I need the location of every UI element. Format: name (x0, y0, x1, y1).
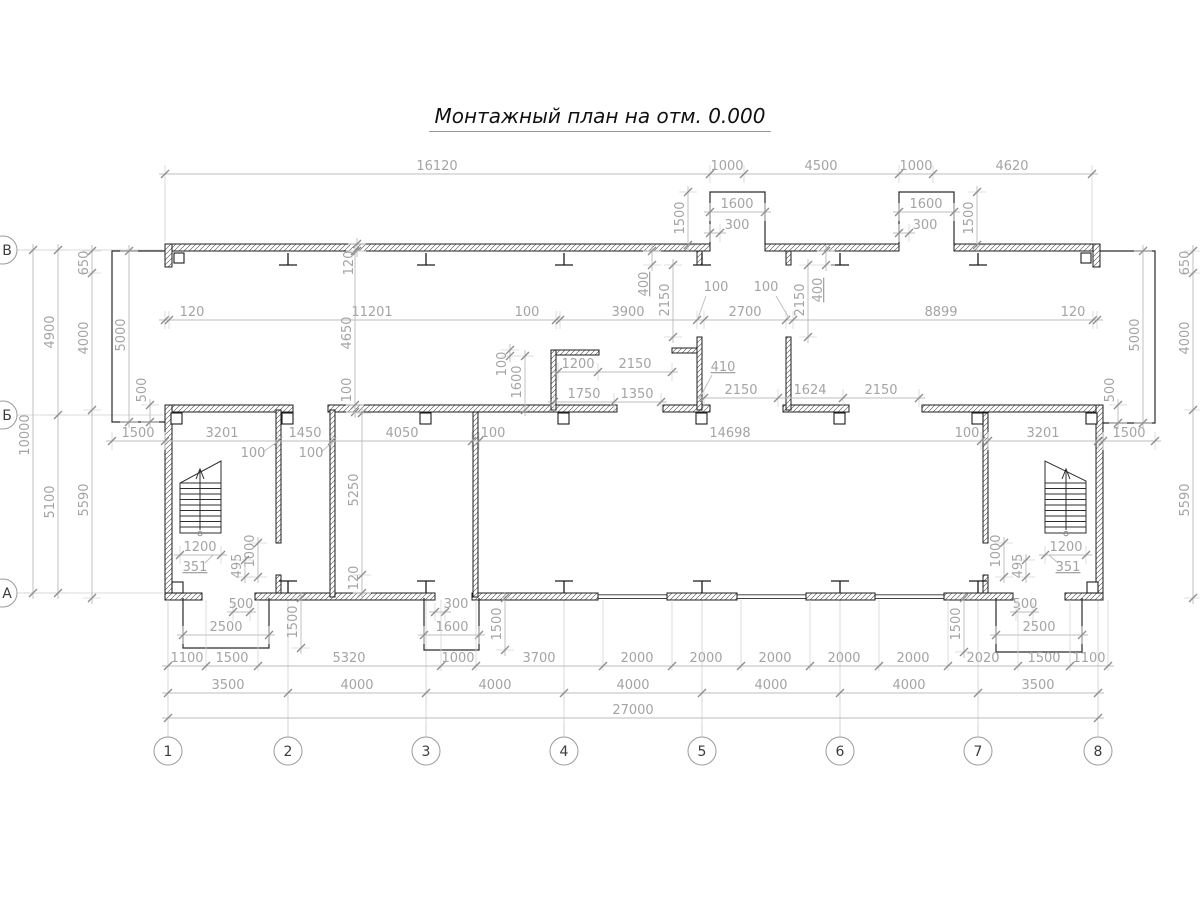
dimension: 5000 (1128, 245, 1152, 429)
dim-label: 4000 (340, 678, 373, 693)
dim-label: 1750 (567, 387, 600, 402)
stair-left (180, 461, 221, 536)
dimension: 65040005590 (77, 245, 101, 604)
dimension: 500 (1010, 597, 1039, 621)
dim-label: 500 (229, 597, 254, 612)
axis-bubble-label: 2 (284, 744, 293, 760)
dimension: 300 (429, 597, 468, 621)
dim-label: 4000 (616, 678, 649, 693)
dim-label: 100 (955, 426, 980, 441)
axis-bubble-label: А (2, 586, 12, 602)
dimension: 500 (1103, 378, 1127, 429)
dim-label: 1600 (435, 620, 468, 635)
dim-label: 1000 (989, 534, 1004, 567)
dimension: 161201000450010004620 (159, 159, 1098, 183)
dim-label: 5000 (114, 318, 129, 351)
dim-label: 120 (180, 305, 205, 320)
dim-label: 5320 (332, 651, 365, 666)
axis-bubble-label: В (2, 243, 12, 259)
dim-label: 1500 (1027, 651, 1060, 666)
leader-label: 410 (711, 360, 736, 375)
leader-note: 351 (1049, 555, 1080, 575)
dim-label: 1000 (710, 159, 743, 174)
dim-label: 2150 (618, 357, 651, 372)
axis-bubble-label: 4 (560, 744, 569, 760)
dim-label: 4000 (892, 678, 925, 693)
axis-bubble-column: 7 (964, 723, 992, 765)
dim-label: 2500 (1022, 620, 1055, 635)
axis-bubble-label: 8 (1094, 744, 1103, 760)
dimension: 1500 (286, 592, 310, 654)
dim-label: 2000 (620, 651, 653, 666)
dimension: 1000 (989, 534, 1013, 583)
leader-label: 351 (1056, 560, 1081, 575)
dim-label: 300 (725, 218, 750, 233)
dimension: 1600 (418, 620, 485, 644)
window-lines (598, 595, 944, 599)
dimension: 500 (135, 378, 159, 428)
dimension: 12011201100390027008899120 (159, 305, 1103, 329)
dim-label: 1500 (286, 605, 301, 638)
dim-label: 1100 (1072, 651, 1105, 666)
dimension: 1500 (949, 592, 973, 658)
dim-label: 1450 (288, 426, 321, 441)
dim-label: 1624 (793, 383, 826, 398)
axis-bubble-column: 8 (1084, 723, 1112, 765)
dim-label: 4000 (77, 321, 92, 354)
leader-note: 351 (183, 555, 213, 575)
axis-bubble-label: Б (2, 408, 12, 424)
axis-bubble-row: А (0, 579, 17, 607)
dim-label: 1600 (510, 365, 525, 398)
dimension: 495 (1011, 554, 1035, 583)
dimension: 49005100 (43, 244, 67, 599)
dim-label: 2000 (896, 651, 929, 666)
dim-label: 2150 (864, 383, 897, 398)
dimension: 215016242150 (698, 383, 925, 407)
dim-label: 2150 (793, 283, 808, 316)
dim-label: 495 (1011, 554, 1026, 579)
dimension: 1100150053201000370020002000200020002000… (162, 600, 1114, 671)
leader-note: 100 (299, 442, 333, 461)
axis-bubble-label: 3 (422, 744, 431, 760)
dim-label: 3500 (1021, 678, 1054, 693)
dimension: 400 (811, 245, 835, 302)
dim-label: 500 (1013, 597, 1038, 612)
stair-right (1045, 461, 1086, 536)
dim-label: 4650 (340, 316, 355, 349)
axis-bubble-row: В (0, 236, 17, 264)
dim-label: 2700 (728, 305, 761, 320)
leader-label: 100 (754, 280, 779, 295)
axis-bubble-column: 1 (154, 723, 182, 765)
dim-label: 1000 (441, 651, 474, 666)
dim-label: 10000 (18, 414, 33, 455)
dim-label: 2000 (689, 651, 722, 666)
dim-label: 500 (135, 378, 150, 403)
dim-label: 1100 (170, 651, 203, 666)
dimension: 27000 (162, 703, 1104, 727)
dimension: 10000 (18, 244, 42, 599)
dimension: 12002150 (552, 357, 678, 381)
dim-label: 1200 (183, 540, 216, 555)
dim-label: 100 (340, 378, 355, 403)
dim-label: 650 (77, 251, 92, 276)
dim-label: 5000 (1128, 318, 1143, 351)
dim-label: 2000 (758, 651, 791, 666)
dimension: 300 (704, 218, 749, 242)
leader-label: 351 (183, 560, 208, 575)
dim-label: 8899 (924, 305, 957, 320)
dim-label: 4000 (754, 678, 787, 693)
dimension: 1500 (673, 186, 697, 251)
dimension: 5250120 (347, 407, 371, 599)
walls (165, 244, 1103, 600)
dim-label: 2020 (966, 651, 999, 666)
dim-label: 1350 (620, 387, 653, 402)
dim-label: 3201 (1026, 426, 1059, 441)
dim-label: 4900 (43, 315, 58, 348)
dim-label: 1200 (1049, 540, 1082, 555)
axis-bubble-label: 6 (836, 744, 845, 760)
dim-label: 3500 (211, 678, 244, 693)
dim-label: 1200 (561, 357, 594, 372)
leader-note: 100 (698, 280, 728, 318)
dimension: 2500 (990, 620, 1088, 644)
dim-label: 1600 (720, 197, 753, 212)
dim-label: 4500 (804, 159, 837, 174)
axis-bubble-label: 7 (974, 744, 983, 760)
dim-label: 500 (1103, 378, 1118, 403)
dim-label: 16120 (416, 159, 457, 174)
dim-label: 2500 (209, 620, 242, 635)
dim-label: 4000 (1178, 321, 1193, 354)
dim-label: 5590 (1178, 483, 1193, 516)
dim-label: 1500 (121, 426, 154, 441)
dimension: 3500400040004000400040003500 (162, 678, 1104, 702)
floorplan-canvas: 1612010004500100046201600300160030012011… (0, 0, 1200, 900)
dim-label: 400 (637, 272, 652, 297)
dim-label: 3201 (205, 426, 238, 441)
dimension: 300 (893, 218, 937, 242)
dim-label: 2000 (827, 651, 860, 666)
dim-label: 650 (1178, 251, 1193, 276)
dim-label: 27000 (612, 703, 653, 718)
floorplan-page: Монтажный план на отм. 0.000 (0, 0, 1200, 900)
dim-label: 1500 (215, 651, 248, 666)
dim-label: 3900 (611, 305, 644, 320)
dim-label: 5250 (347, 473, 362, 506)
dim-label: 1500 (490, 607, 505, 640)
dim-label: 120 (1061, 305, 1086, 320)
dim-label: 4620 (995, 159, 1028, 174)
dim-label: 100 (481, 426, 506, 441)
dimension: 1500 (490, 592, 514, 656)
porch-outlines (183, 192, 1082, 652)
dim-label: 5100 (43, 485, 58, 518)
steel-column-icons (279, 253, 987, 593)
dim-label: 1000 (899, 159, 932, 174)
dimension: 65040005590 (1178, 245, 1200, 604)
leader-label: 100 (704, 280, 729, 295)
dim-label: 300 (444, 597, 469, 612)
dim-label: 495 (230, 554, 245, 579)
leader-label: 100 (241, 446, 266, 461)
dim-label: 100 (515, 305, 540, 320)
axis-bubble-label: 5 (698, 744, 707, 760)
axis-bubble-column: 4 (550, 723, 578, 765)
axis-bubble-row: Б (0, 401, 17, 429)
dim-label: 14698 (709, 426, 750, 441)
dim-label: 2150 (724, 383, 757, 398)
dim-label: 4000 (478, 678, 511, 693)
axis-bubble-column: 3 (412, 723, 440, 765)
dimension: 2150 (658, 259, 682, 343)
dim-label: 400 (811, 278, 826, 303)
dim-label: 1500 (1112, 426, 1145, 441)
dim-label: 1500 (962, 201, 977, 234)
dim-label: 3700 (522, 651, 555, 666)
dim-label: 11201 (351, 305, 392, 320)
leader-label: 100 (299, 446, 324, 461)
dim-label: 1500 (673, 201, 688, 234)
dim-label: 5590 (77, 483, 92, 516)
partition-walls (276, 337, 988, 597)
axis-bubble-column: 5 (688, 723, 716, 765)
dim-label: 120 (347, 566, 362, 591)
dim-label: 2150 (658, 283, 673, 316)
dim-label: 1500 (949, 607, 964, 640)
dimension: 2500 (177, 620, 275, 644)
dim-label: 4050 (385, 426, 418, 441)
dim-label: 300 (913, 218, 938, 233)
dim-label: 1600 (909, 197, 942, 212)
column-square-icons (171, 253, 1098, 593)
dimension: 1500 (962, 186, 986, 251)
axis-bubble-label: 1 (164, 744, 173, 760)
axis-bubble-column: 2 (274, 723, 302, 765)
dim-label: 100 (495, 352, 510, 377)
axis-bubble-column: 6 (826, 723, 854, 765)
leader-note: 100 (241, 442, 277, 461)
dimension: 500 (227, 597, 256, 621)
